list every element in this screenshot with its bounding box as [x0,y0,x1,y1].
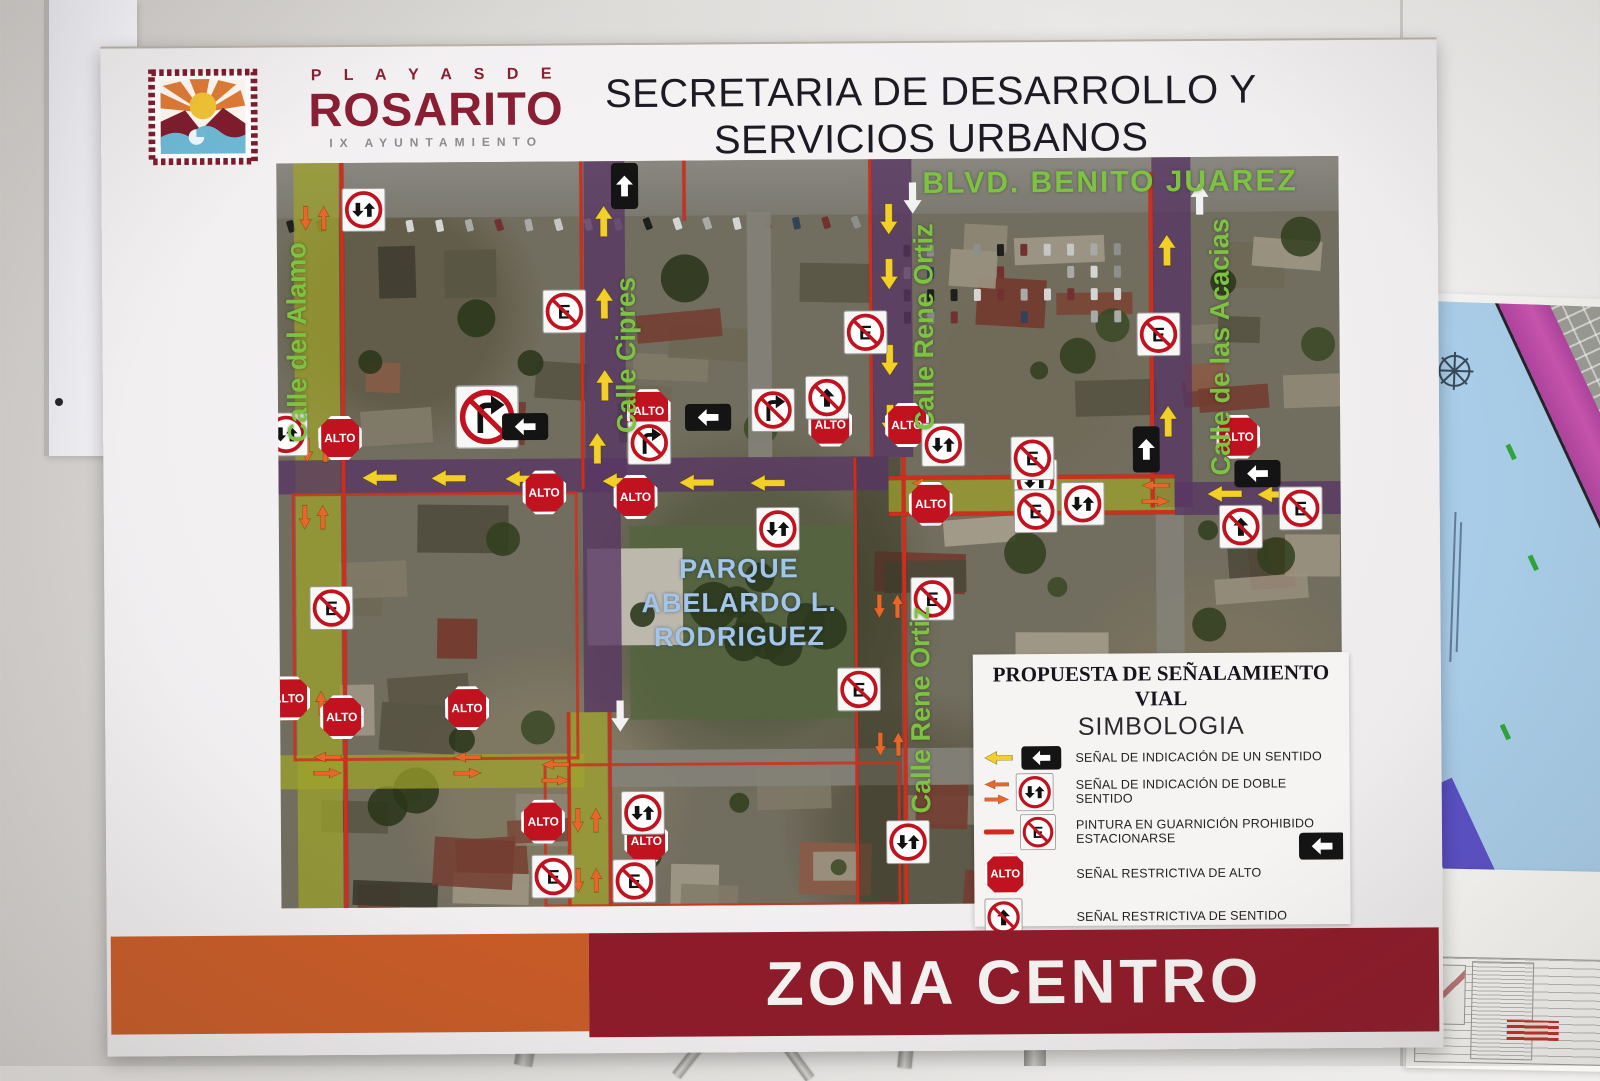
arrow-yellow-up [1156,405,1180,439]
street-label: Calle Rene Ortiz [908,223,940,430]
no-parking-sign: E [1014,489,1058,533]
two-way-sign [1060,481,1104,525]
arrow-yellow-down [876,202,900,236]
stop-sign-alto: ALTO [445,686,489,730]
no-parking-sign: E [1278,486,1322,530]
arrow-orange-double-vertical [871,593,904,619]
red-curb-icon [984,829,1014,834]
arrow-orange-double-vertical [297,504,330,530]
no-parking-sign: E [542,289,586,333]
zona-centro-banner: ZONA CENTRO [589,927,1440,1037]
arrow-white-down [901,181,925,215]
arrow-yellow-left [748,472,786,494]
arrow-white-down [608,699,632,733]
stop-sign-alto: ALTO [276,676,310,720]
legend-title: PROPUESTA DE SEÑALAMIENTO VIAL [983,660,1339,712]
no-parking-icon: E [984,813,1076,850]
legend-box: PROPUESTA DE SEÑALAMIENTO VIAL SIMBOLOGI… [973,652,1351,927]
document-red-mark [1507,1020,1559,1041]
screw [55,398,63,406]
two-way-sign [756,507,800,551]
one-way-left-sign [1296,832,1343,860]
arrow-orange-double-vertical [872,731,905,757]
no-parking-sign: E [1137,312,1181,356]
no-right-turn-sign [751,388,795,432]
two-way-sign [342,188,386,232]
zona-centro-text: ZONA CENTRO [766,945,1263,1019]
arrow-yellow-up [585,431,609,465]
two-way-icon [984,772,1076,811]
stop-sign-alto: ALTO [320,695,364,739]
document-table [1470,961,1534,1060]
arrow-yellow-left [360,467,398,489]
poster-title: SECRETARIA DE DESARROLLO Y SERVICIOS URB… [551,66,1312,166]
arrow-orange-double-horizontal [541,758,571,787]
arrow-orange-double-vertical [298,205,331,231]
one-way-up-sign [611,162,639,211]
coastal-map-beach-strip [1479,301,1600,878]
legend-item-one-way: SEÑAL DE INDICACIÓN DE UN SENTIDO [983,744,1339,770]
arrow-orange-double-horizontal [312,750,342,779]
green-mark [1528,554,1539,571]
street-label: BLVD. BENITO JUAREZ [922,165,1297,202]
park-label: PARQUEABELARDO L.RODRIGUEZ [641,552,837,655]
legend-item-label: SEÑAL DE INDICACIÓN DE UN SENTIDO [1075,749,1322,765]
legend-item-no-parking: E PINTURA EN GUARNICIÓN PROHIBIDO ESTACI… [984,812,1340,850]
street-label: Calle Cipres [611,277,643,433]
no-entry-sign [1219,505,1263,549]
arrow-orange-double-horizontal [1141,479,1171,508]
one-way-up-sign [1132,425,1160,474]
stop-sign-alto: ALTO [613,475,657,519]
no-entry-sign [805,375,849,419]
stop-sign-alto: ALTO [909,482,953,526]
street-label: Calle Rene Ortiz [905,607,937,814]
photo-of-signage-poster: { "header": { "brand_top": "P L A Y A S … [0,0,1600,1066]
arrow-orange-double-vertical [570,807,603,833]
one-way-left-sign [1232,460,1283,488]
two-way-sign [621,791,665,835]
one-way-icon [983,746,1075,770]
map-note-text [1456,522,1463,652]
no-parking-sign: E [309,586,353,630]
legend-item-two-way: SEÑAL DE INDICACIÓN DE DOBLE SENTIDO [984,771,1340,811]
arrow-yellow-down [877,258,901,292]
street-label: Calle del Alamo [282,242,314,442]
one-way-left-sign [500,413,551,441]
legend-subtitle: SIMBOLOGIA [983,711,1339,742]
green-mark [1500,724,1511,741]
legend-item-label: SEÑAL RESTRICTIVA DE ALTO [1076,865,1261,880]
no-parking-sign: E [1010,436,1054,480]
legend-item-label: SEÑAL DE INDICACIÓN DE DOBLE SENTIDO [1076,776,1340,806]
no-parking-sign: E [844,310,888,354]
street-label: Calle de las Acacias [1204,218,1237,475]
green-mark [1505,444,1516,461]
one-way-left-sign [683,404,734,432]
stop-sign-alto: ALTO [522,470,566,514]
no-parking-sign: E [837,667,881,711]
rosarito-logo [147,68,260,167]
arrow-yellow-up [1155,233,1179,267]
no-parking-sign: E [531,855,575,899]
two-way-sign [885,820,929,864]
no-parking-sign: E [612,858,656,902]
arrow-yellow-left [429,467,467,489]
title-line-1: SECRETARIA DE DESARROLLO Y [551,66,1311,118]
orange-band [111,933,590,1034]
arrow-orange-double-horizontal [452,751,482,780]
legend-item-label: SEÑAL RESTRICTIVA DE SENTIDO [1077,908,1288,923]
arrow-orange-double-vertical [571,867,604,893]
signage-proposal-poster: P L A Y A S D E ROSARITO IX AYUNTAMIENTO… [100,37,1443,1056]
stop-sign-alto: ALTO [318,416,362,460]
legend-item-stop: ALTO SEÑAL RESTRICTIVA DE ALTO [984,851,1340,895]
stop-icon: ALTO [984,852,1076,895]
stop-sign-alto: ALTO [521,800,565,844]
arrow-yellow-left [678,471,716,493]
